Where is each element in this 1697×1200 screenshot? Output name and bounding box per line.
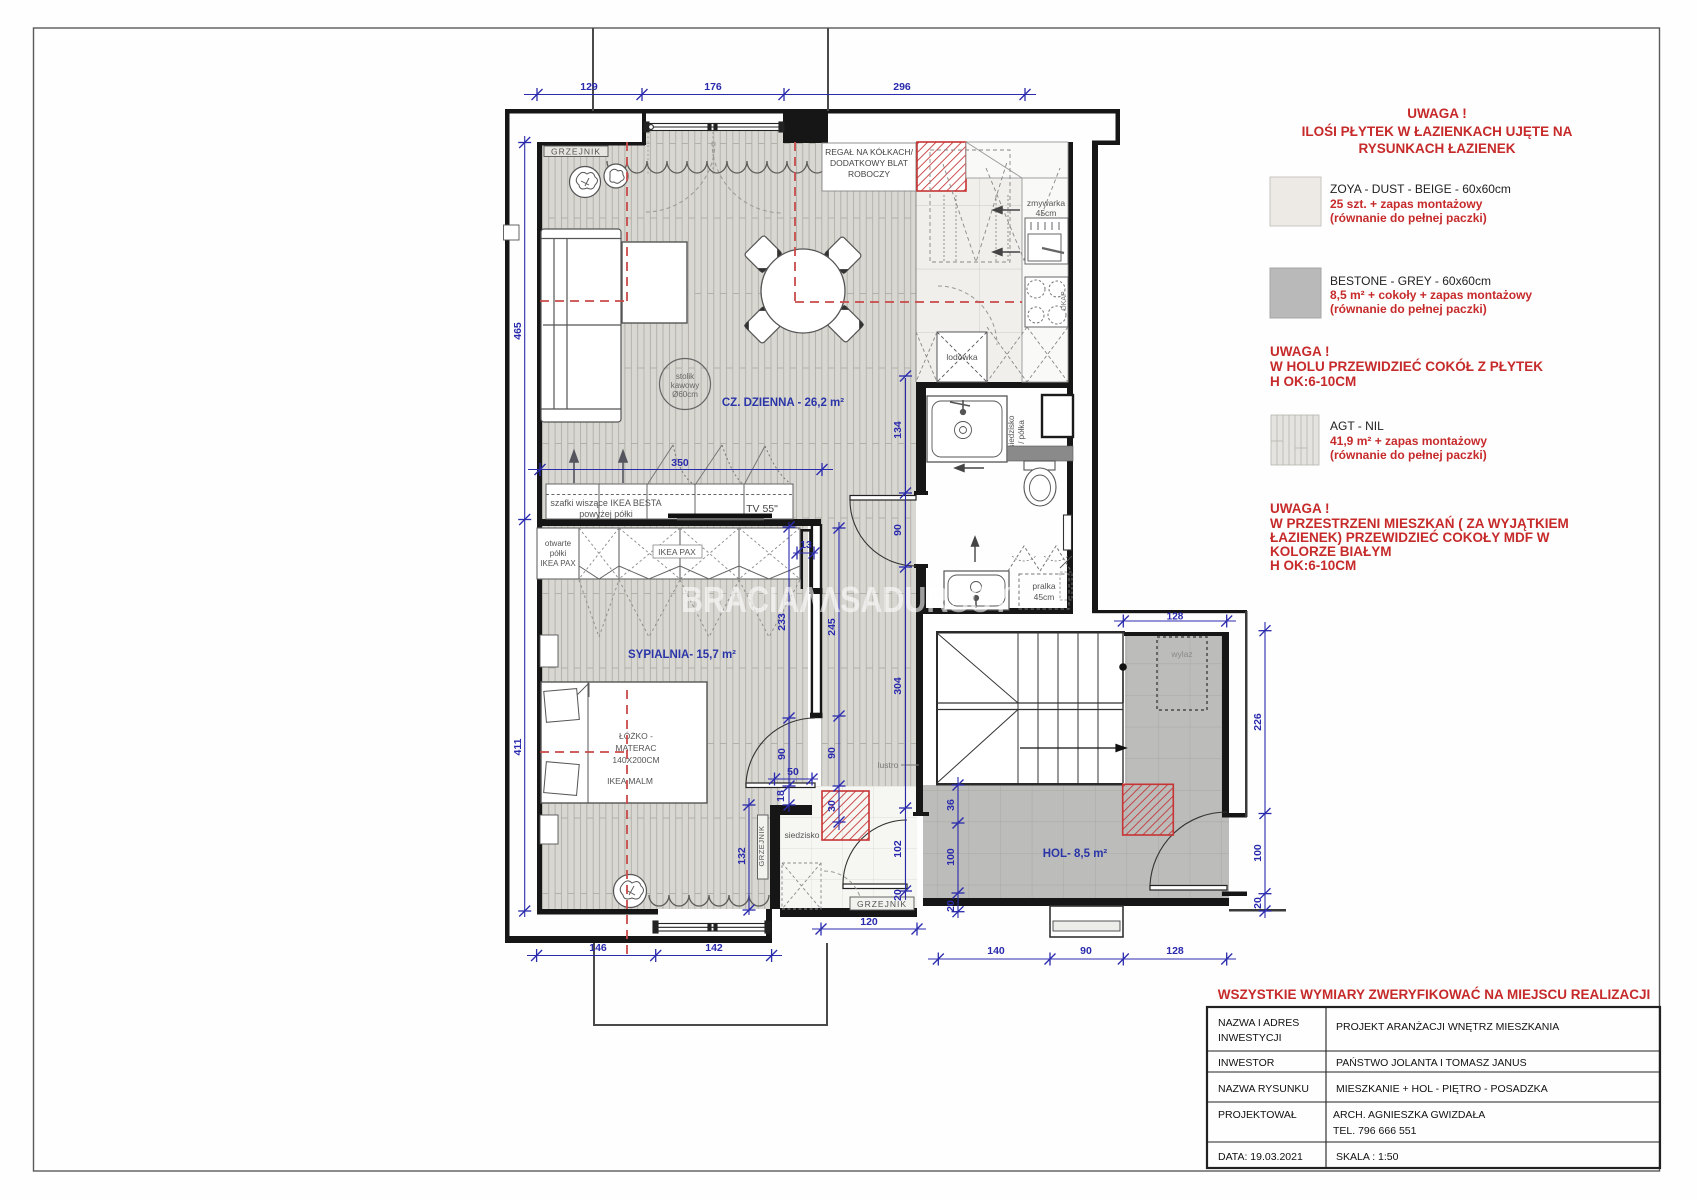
svg-text:ŁÓŻKO -: ŁÓŻKO - — [619, 731, 653, 741]
svg-text:128: 128 — [1167, 612, 1184, 623]
svg-text:13: 13 — [800, 539, 812, 551]
svg-text:Ø60cm: Ø60cm — [672, 390, 698, 399]
svg-text:INWESTOR: INWESTOR — [1218, 1057, 1275, 1069]
svg-text:AGT - NIL: AGT - NIL — [1330, 419, 1384, 433]
svg-text:30: 30 — [826, 800, 838, 812]
svg-text:TEL. 796 666 551: TEL. 796 666 551 — [1333, 1125, 1417, 1137]
svg-text:IKEA PAX: IKEA PAX — [658, 547, 696, 557]
svg-text:102: 102 — [892, 840, 904, 858]
svg-text:129: 129 — [580, 81, 598, 93]
svg-text:8,5 m² + cokoły + zapas montaż: 8,5 m² + cokoły + zapas montażowy — [1330, 288, 1532, 302]
svg-text:132: 132 — [736, 847, 748, 865]
svg-text:BESTONE - GREY - 60x60cm: BESTONE - GREY - 60x60cm — [1330, 274, 1491, 288]
svg-text:41,9 m² + zapas montażowy: 41,9 m² + zapas montażowy — [1330, 434, 1487, 448]
svg-text:176: 176 — [704, 81, 722, 93]
svg-text:ROBOCZY: ROBOCZY — [848, 169, 890, 179]
svg-text:DODATKOWY BLAT: DODATKOWY BLAT — [830, 158, 908, 168]
svg-text:25 szt. + zapas montażowy: 25 szt. + zapas montażowy — [1330, 197, 1483, 211]
svg-text:PAŃSTWO JOLANTA I TOMASZ JANUS: PAŃSTWO JOLANTA I TOMASZ JANUS — [1336, 1056, 1527, 1069]
svg-text:GRZEJNIK: GRZEJNIK — [757, 825, 766, 866]
svg-text:IKEA PAX: IKEA PAX — [540, 559, 576, 568]
svg-text:100: 100 — [945, 848, 957, 866]
svg-text:90: 90 — [892, 524, 904, 536]
svg-text:(równanie do pełnej paczki): (równanie do pełnej paczki) — [1330, 302, 1487, 316]
svg-text:H OK:6-10CM: H OK:6-10CM — [1270, 558, 1356, 573]
svg-text:półki: półki — [550, 549, 567, 558]
svg-text:kawowy: kawowy — [671, 381, 699, 390]
svg-text:REGAŁ NA KÓŁKACH/: REGAŁ NA KÓŁKACH/ — [825, 147, 914, 157]
svg-text:296: 296 — [893, 81, 911, 93]
svg-text:ILOŚI PŁYTEK W ŁAZIENKACH UJĘT: ILOŚI PŁYTEK W ŁAZIENKACH UJĘTE NA — [1302, 124, 1573, 139]
svg-text:50: 50 — [787, 766, 799, 778]
svg-text:465: 465 — [512, 322, 524, 340]
svg-text:zmywarka: zmywarka — [1027, 198, 1066, 208]
svg-text:BRACIAΛΛSADURSCY: BRACIAΛΛSADURSCY — [681, 579, 1011, 620]
svg-text:120: 120 — [860, 916, 878, 928]
svg-text:powyżej półki: powyżej półki — [579, 509, 633, 519]
svg-text:W HOLU PRZEWIDZIEĆ COKÓŁ Z PŁY: W HOLU PRZEWIDZIEĆ COKÓŁ Z PŁYTEK — [1270, 359, 1543, 374]
svg-text:245: 245 — [826, 618, 838, 636]
svg-text:226: 226 — [1252, 713, 1264, 731]
svg-text:ZOYA - DUST - BEIGE - 60x60cm: ZOYA - DUST - BEIGE - 60x60cm — [1330, 182, 1511, 196]
svg-text:45cm: 45cm — [1036, 208, 1057, 218]
svg-text:siedzisko: siedzisko — [1007, 415, 1016, 448]
svg-text:20: 20 — [945, 900, 957, 912]
svg-text:NAZWA RYSUNKU: NAZWA RYSUNKU — [1218, 1083, 1309, 1095]
svg-text:304: 304 — [892, 677, 904, 695]
svg-text:128: 128 — [1166, 945, 1184, 957]
svg-text:stolik: stolik — [676, 372, 695, 381]
svg-text:GRZEJNIK: GRZEJNIK — [551, 147, 601, 157]
svg-text:(równanie do pełnej paczki): (równanie do pełnej paczki) — [1330, 448, 1487, 462]
svg-text:PROJEKT ARANŻACJI WNĘTRZ MIESZ: PROJEKT ARANŻACJI WNĘTRZ MIESZKANIA — [1336, 1020, 1559, 1033]
svg-text:350: 350 — [671, 457, 689, 469]
svg-text:UWAGA !: UWAGA ! — [1270, 501, 1330, 516]
svg-text:HOL- 8,5 m²: HOL- 8,5 m² — [1043, 848, 1108, 860]
svg-text:siedzisko: siedzisko — [785, 830, 820, 840]
svg-text:90: 90 — [776, 748, 788, 760]
svg-text:wylaz: wylaz — [1170, 649, 1192, 659]
svg-text:20: 20 — [892, 889, 904, 901]
svg-text:DATA: 19.03.2021: DATA: 19.03.2021 — [1218, 1151, 1303, 1163]
svg-text:18: 18 — [775, 790, 787, 802]
svg-text:SKALA : 1:50: SKALA : 1:50 — [1336, 1151, 1399, 1163]
svg-text:100: 100 — [1252, 844, 1264, 862]
svg-text:(równanie do pełnej paczki): (równanie do pełnej paczki) — [1330, 211, 1487, 225]
svg-text:140: 140 — [987, 945, 1005, 957]
svg-text:PROJEKTOWAŁ: PROJEKTOWAŁ — [1218, 1109, 1297, 1121]
svg-text:SYPIALNIA- 15,7 m²: SYPIALNIA- 15,7 m² — [628, 649, 736, 661]
svg-text:szafki wiszące IKEA BESTA: szafki wiszące IKEA BESTA — [550, 498, 661, 508]
svg-text:H OK:6-10CM: H OK:6-10CM — [1270, 374, 1356, 389]
svg-text:otwarte: otwarte — [545, 539, 572, 548]
svg-text:OKAP: OKAP — [1061, 291, 1068, 311]
svg-text:90: 90 — [1080, 945, 1092, 957]
svg-text:142: 142 — [705, 942, 723, 954]
svg-text:ARCH. AGNIESZKA GWIZDAŁA: ARCH. AGNIESZKA GWIZDAŁA — [1333, 1109, 1485, 1121]
svg-text:UWAGA !: UWAGA ! — [1270, 344, 1330, 359]
svg-text:45cm: 45cm — [1034, 592, 1055, 602]
svg-text:MIESZKANIE + HOL - PIĘTRO - PO: MIESZKANIE + HOL - PIĘTRO - POSADZKA — [1336, 1083, 1548, 1095]
svg-text:90: 90 — [826, 747, 838, 759]
svg-text:KOLORZE BIAŁYM: KOLORZE BIAŁYM — [1270, 544, 1392, 559]
svg-text:36: 36 — [945, 799, 957, 811]
svg-text:411: 411 — [512, 738, 524, 755]
svg-text:134: 134 — [892, 421, 904, 439]
svg-text:lustro: lustro — [878, 760, 899, 770]
svg-text:WSZYSTKIE WYMIARY ZWERYFIKOWAĆ: WSZYSTKIE WYMIARY ZWERYFIKOWAĆ NA MIEJSC… — [1218, 987, 1651, 1002]
svg-text:/ półka: / półka — [1017, 420, 1026, 444]
svg-text:RYSUNKACH ŁAZIENEK: RYSUNKACH ŁAZIENEK — [1358, 141, 1515, 156]
svg-text:IKEA MALM: IKEA MALM — [607, 776, 653, 786]
svg-text:CZ. DZIENNA - 26,2 m²: CZ. DZIENNA - 26,2 m² — [722, 397, 844, 409]
svg-text:TV 55": TV 55" — [746, 503, 778, 515]
svg-text:INWESTYCJI: INWESTYCJI — [1218, 1032, 1282, 1044]
svg-text:UWAGA !: UWAGA ! — [1407, 106, 1467, 121]
svg-text:140X200CM: 140X200CM — [612, 755, 659, 765]
svg-text:NAZWA I ADRES: NAZWA I ADRES — [1218, 1017, 1299, 1029]
svg-text:W PRZESTRZENI MIESZKAŃ ( ZA WY: W PRZESTRZENI MIESZKAŃ ( ZA WYJĄTKIEM — [1270, 516, 1569, 531]
svg-text:146: 146 — [589, 942, 607, 954]
svg-text:20: 20 — [1252, 897, 1264, 909]
svg-text:lodówka: lodówka — [946, 352, 977, 362]
svg-text:ŁAZIENEK) PRZEWIDZIEĆ COKOŁY M: ŁAZIENEK) PRZEWIDZIEĆ COKOŁY MDF W — [1270, 530, 1550, 545]
svg-text:pralka: pralka — [1032, 581, 1055, 591]
